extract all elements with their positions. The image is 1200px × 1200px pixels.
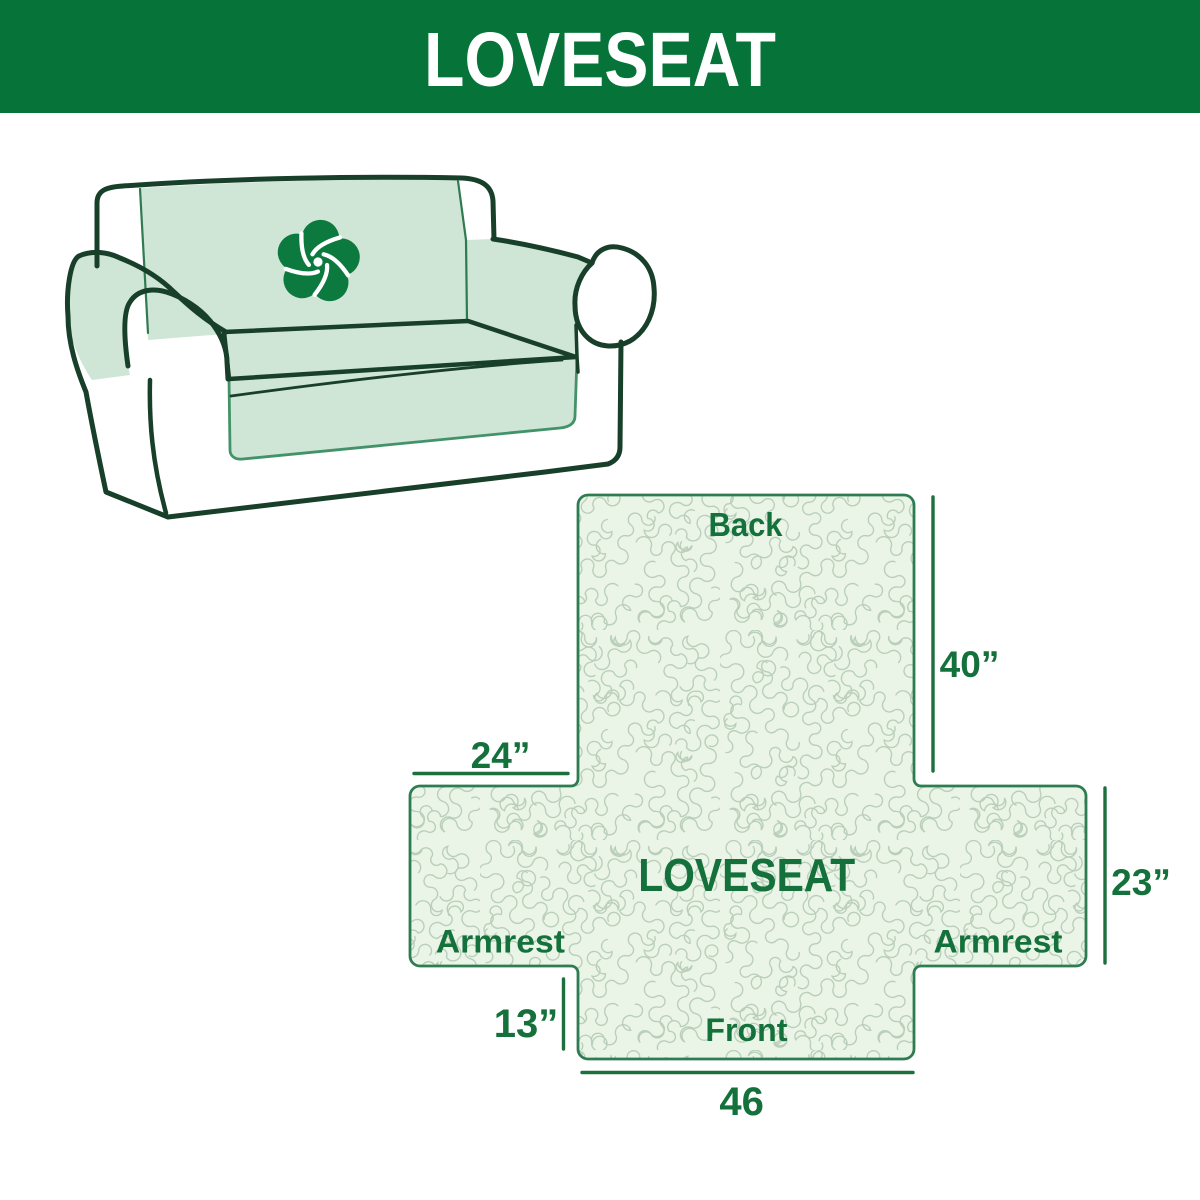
svg-text:13”: 13” [494,1002,559,1046]
svg-text:40”: 40” [940,644,1000,685]
svg-text:Armrest: Armrest [436,924,565,960]
svg-text:Armrest: Armrest [934,924,1063,960]
svg-text:LOVESEAT: LOVESEAT [638,849,855,901]
svg-text:24”: 24” [471,735,531,776]
svg-text:Front: Front [705,1012,787,1048]
svg-text:Back: Back [709,506,784,543]
svg-text:23”: 23” [1111,862,1171,903]
svg-text:46: 46 [719,1080,764,1124]
svg-text:LOVESEAT: LOVESEAT [424,17,776,103]
